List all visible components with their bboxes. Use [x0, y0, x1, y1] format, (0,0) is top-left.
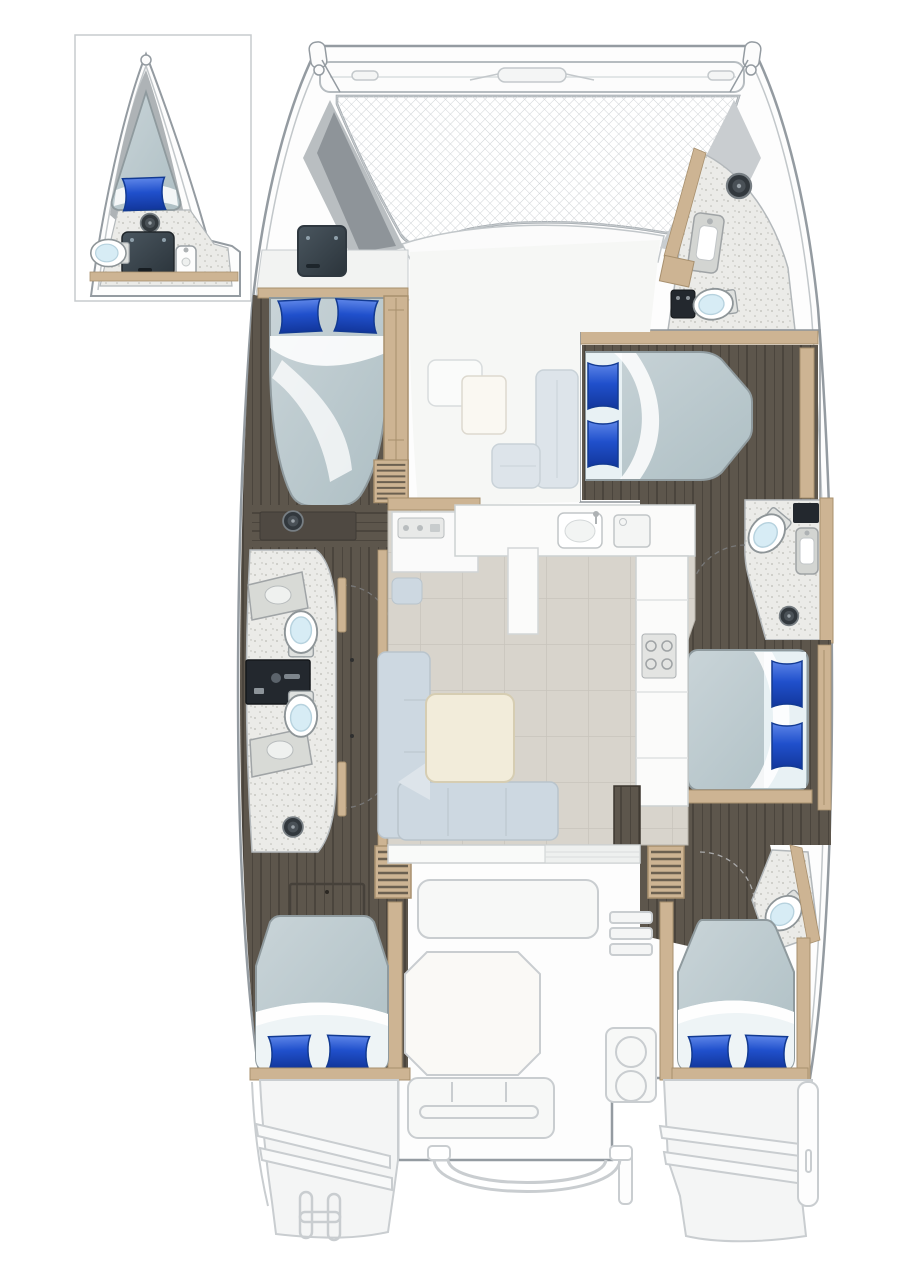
stbd-companionway-steps — [648, 846, 684, 898]
saloon-table — [426, 694, 514, 782]
floor-plan-canvas — [0, 0, 914, 1280]
stbd-aft-post-left — [660, 902, 673, 1080]
cockpit-fwd-bench — [418, 880, 598, 938]
stbd-aft-pillow-left — [688, 1035, 731, 1068]
saloon-aft-bulkhead — [388, 845, 640, 863]
stbd-bow-deck-hatch — [727, 174, 751, 198]
galley-sink-cover — [614, 515, 650, 547]
stbd-mid-side-trim — [820, 498, 833, 643]
stbd-swim-platform — [619, 1080, 818, 1241]
port-aft-pillow-right — [326, 1035, 369, 1068]
port-fwd-pillow-left — [278, 299, 322, 333]
cockpit-side-steps — [610, 912, 652, 955]
stbd-bow-panel — [671, 290, 695, 318]
stbd-mid-drain — [780, 607, 799, 626]
stbd-mid-pillow-bottom — [772, 723, 802, 769]
cockpit-table — [405, 952, 540, 1075]
port-aft-post — [388, 902, 402, 1080]
stbd-fwd-side-trim — [800, 348, 814, 498]
inset-pillow — [122, 177, 165, 210]
port-toilet-aft — [285, 691, 317, 737]
port-toilet-fwd — [285, 611, 317, 657]
port-aft-bulkhead — [250, 1068, 410, 1080]
davit-fitting — [798, 1082, 818, 1206]
port-basin-aft — [267, 741, 293, 759]
port-bow-hatch — [298, 226, 346, 276]
port-fwd-pillow-right — [334, 299, 378, 333]
stbd-mid-panel — [793, 503, 819, 523]
port-fwd-drain — [283, 511, 303, 531]
support-column — [508, 548, 538, 634]
stbd-fwd-headboard — [578, 330, 818, 344]
catamaran-floor-plan — [0, 0, 914, 1280]
galley-side-counter — [636, 556, 688, 806]
port-bath-drain — [283, 817, 303, 837]
inset-basin — [176, 246, 196, 276]
stbd-bow-shelf — [659, 255, 694, 287]
port-basin-fwd — [265, 586, 291, 604]
stbd-aft-pillow-right — [744, 1035, 787, 1068]
galley-top-counter — [455, 505, 695, 556]
inset-sill — [90, 272, 238, 281]
stbd-mid-pillow-top — [772, 661, 802, 707]
stbd-aft-post-right — [797, 938, 810, 1080]
inset-hatch — [141, 214, 160, 233]
stbd-fwd-pillow-bottom — [588, 421, 618, 467]
stbd-side-deck — [818, 645, 831, 810]
inset-toilet — [91, 239, 129, 266]
port-wardrobe — [384, 296, 408, 464]
port-fwd-steps — [374, 460, 408, 503]
stbd-aft-bulkhead — [672, 1068, 808, 1080]
cockpit-aft-bench — [408, 1078, 554, 1138]
port-swim-platform — [252, 1080, 398, 1240]
stbd-mid-footboard — [684, 790, 812, 803]
inset-bow-fitting — [141, 55, 151, 65]
port-aft-pillow-left — [268, 1035, 311, 1068]
stove — [642, 634, 676, 678]
forepeak-inset — [75, 35, 251, 301]
port-fwd-bench — [260, 512, 356, 540]
inset-dark-unit — [122, 232, 174, 276]
stbd-companionway-notch — [614, 786, 640, 845]
stbd-fwd-pillow-top — [588, 363, 618, 409]
stbd-mid-basin — [796, 528, 818, 574]
grill-console — [606, 1028, 656, 1102]
